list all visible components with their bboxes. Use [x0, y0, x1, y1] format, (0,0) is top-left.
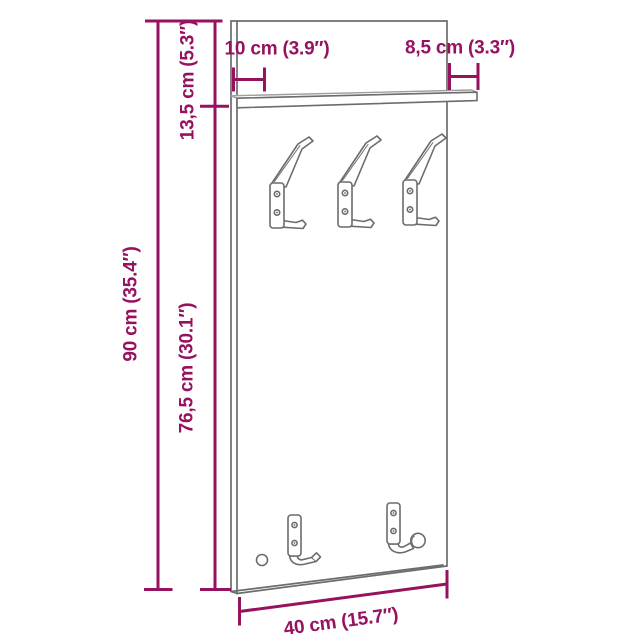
height-dimension-label: 90 cm (35.4″) — [122, 246, 141, 361]
shelf-left-dimension — [234, 68, 265, 92]
upper-section-dimension-label: 13,5 cm (5.3″) — [179, 20, 198, 140]
bottom-hook-right — [387, 503, 425, 553]
top-hook-1 — [270, 137, 313, 229]
bottom-hook-left — [288, 515, 321, 565]
shelf-left-dimension-label: 10 cm (3.9″) — [225, 40, 330, 59]
diagram-drawing — [0, 0, 640, 640]
shelf-right-dimension-label: 8,5 cm (3.3″) — [405, 39, 515, 58]
shelf-right-dimension — [450, 63, 479, 90]
section-dimensions — [200, 21, 231, 590]
top-hook-2 — [338, 136, 381, 228]
top-hook-3 — [403, 134, 446, 226]
shelf — [231, 90, 477, 108]
lower-section-dimension-label: 76,5 cm (30.1″) — [178, 303, 197, 434]
top-hooks — [270, 134, 446, 229]
dimension-diagram: 90 cm (35.4″) 76,5 cm (30.1″) 13,5 cm (5… — [0, 0, 640, 640]
mounting-hole — [257, 555, 268, 566]
bottom-hooks — [288, 503, 425, 565]
